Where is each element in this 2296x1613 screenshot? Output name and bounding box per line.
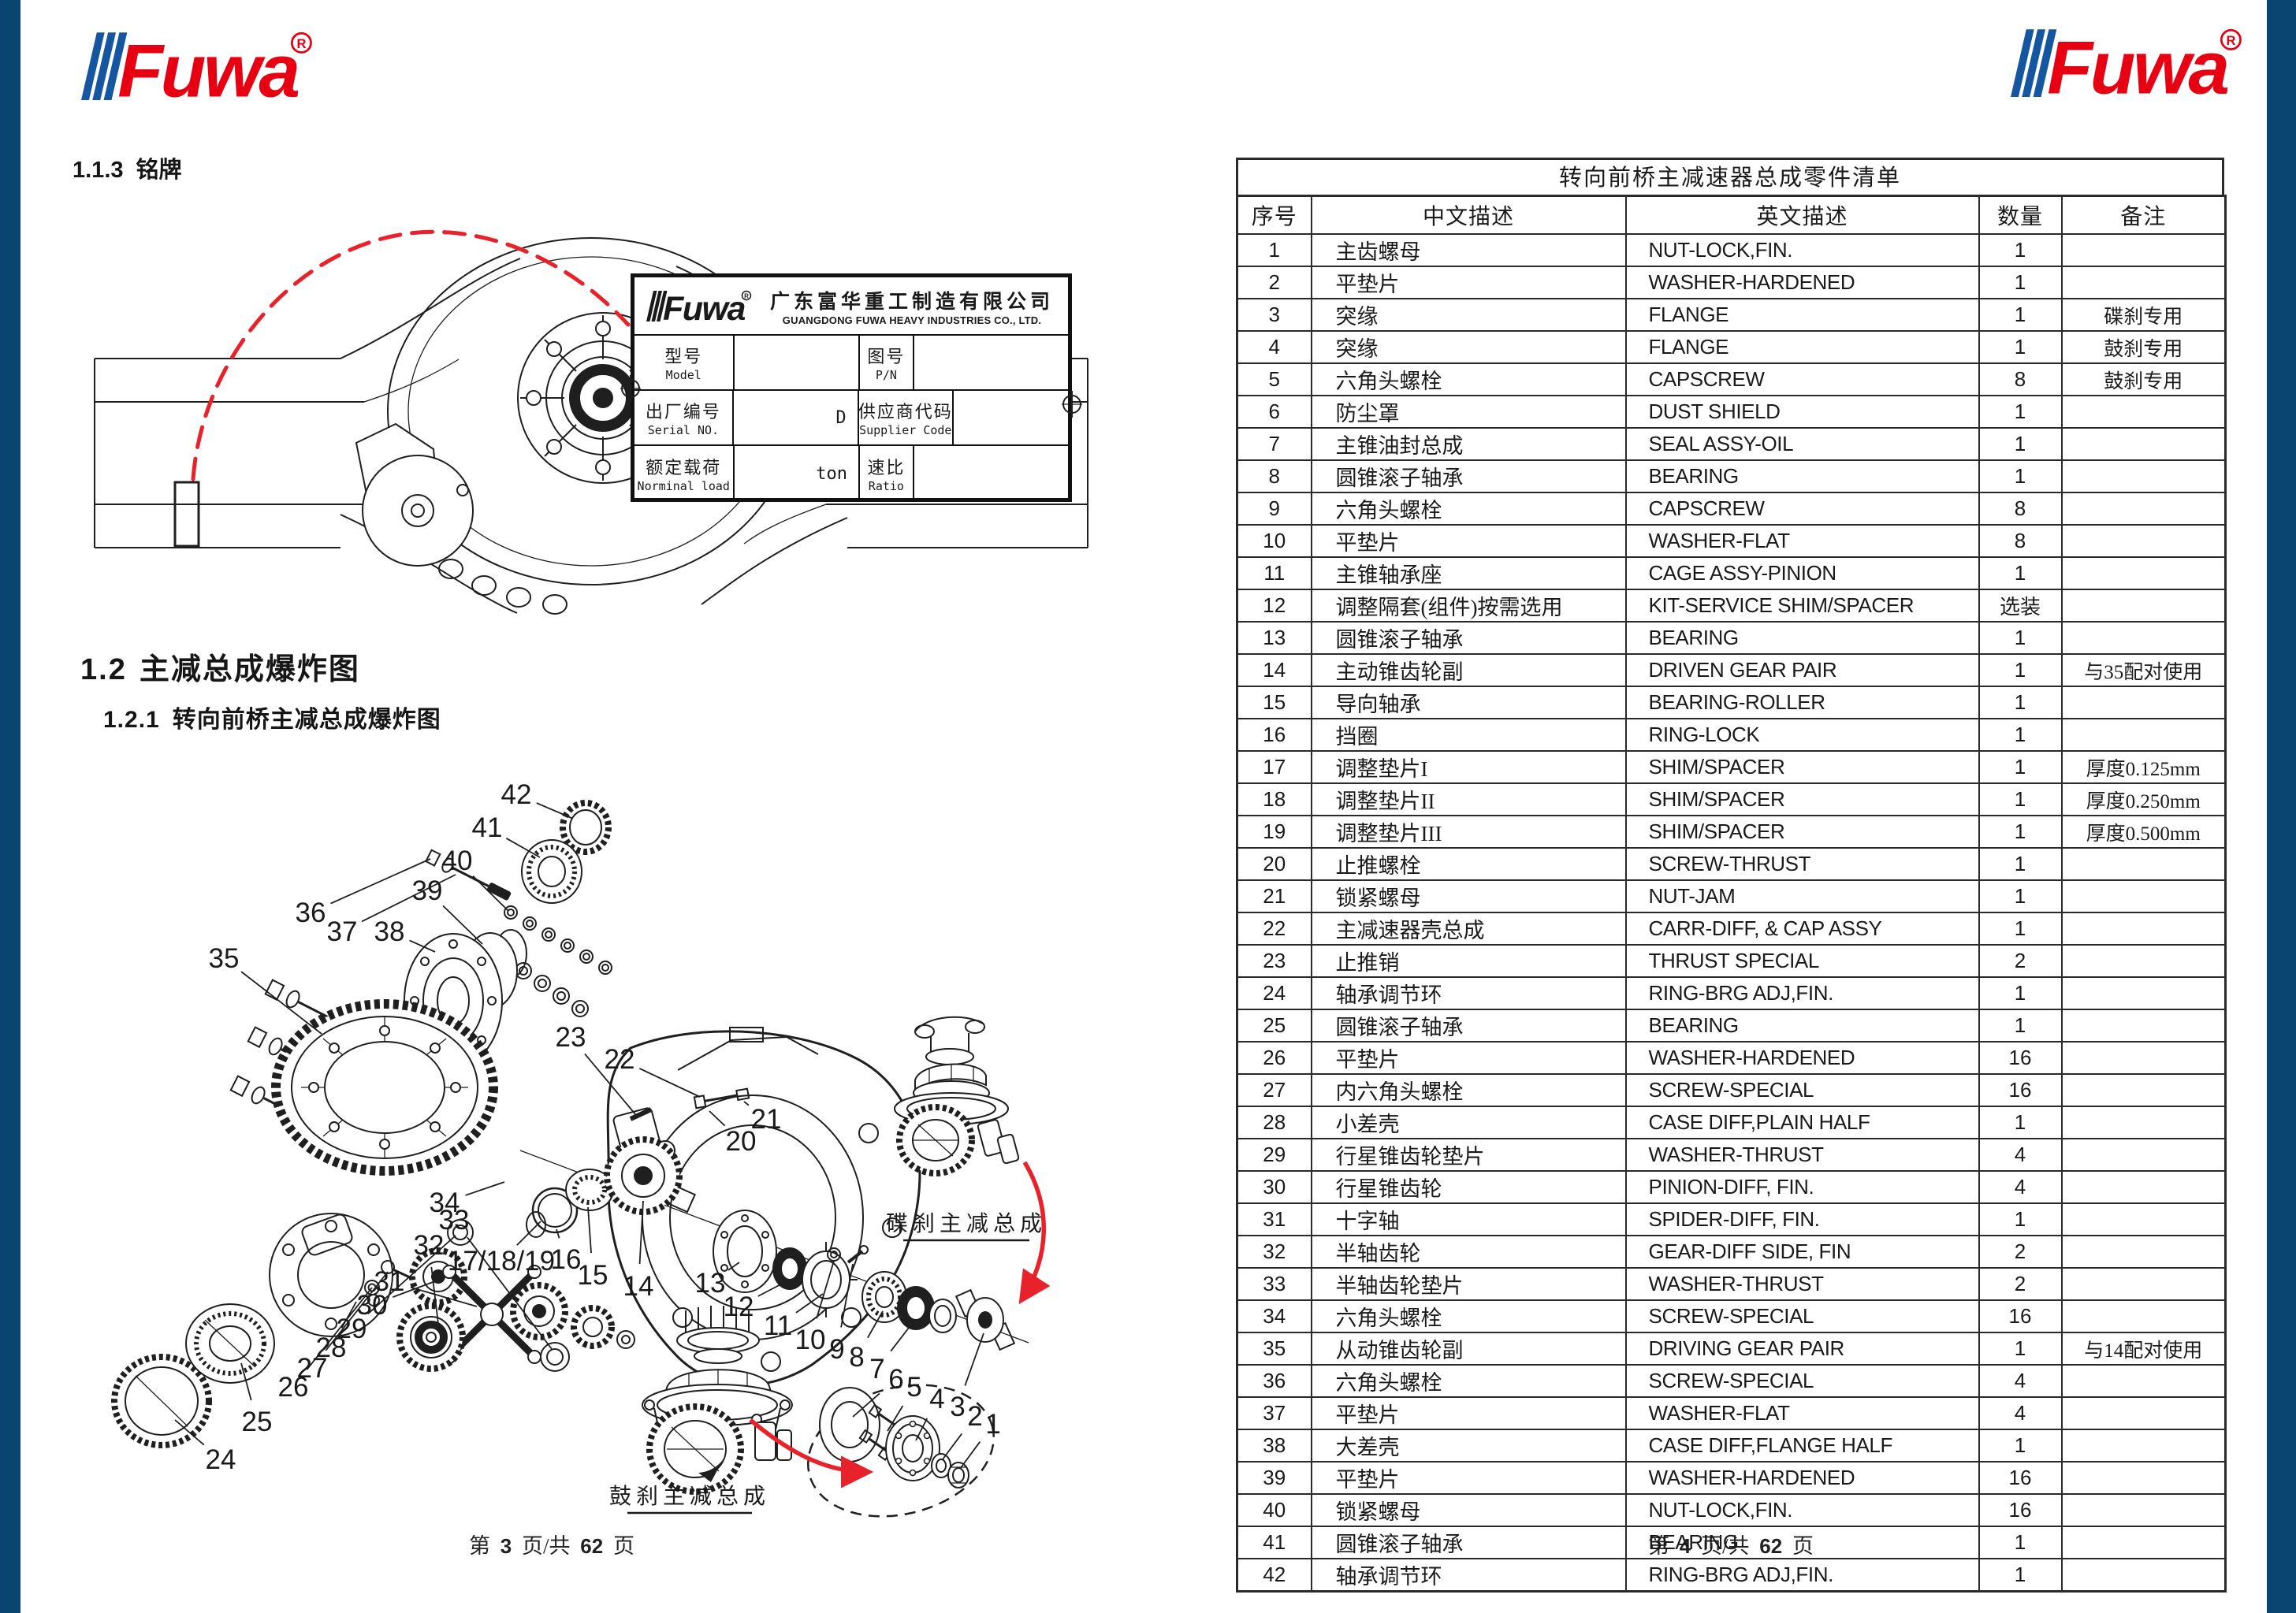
table-cell: 半轴齿轮垫片 [1312,1268,1626,1300]
table-cell: 19 [1237,816,1312,848]
table-cell [2062,1526,2226,1559]
disc-assembly-label: 碟刹主减总成 [886,1211,1047,1236]
disc-brake-assembly-inset [895,1017,1019,1173]
table-cell: 调整垫片III [1312,816,1626,848]
callout-leader-line [517,1221,541,1245]
manual-spread: Fuwa R Fuwa R 1.1.3 铭牌 1.2 主减总成爆炸图 1.2.1… [0,0,2296,1613]
nameplate-row-model: 型号Model 图号P/N [634,336,1068,391]
table-row: 37平垫片WASHER-FLAT4 [1237,1397,2226,1429]
table-cell: 1 [1979,1332,2062,1365]
part-number-label: 2 [967,1401,982,1432]
table-cell: 14 [1237,654,1312,686]
table-cell: CAPSCREW [1626,492,1979,525]
table-cell: SCREW-SPECIAL [1626,1365,1979,1397]
table-cell [2062,1074,2226,1106]
table-row: 33半轴齿轮垫片WASHER-THRUST2 [1237,1268,2226,1300]
part-number-label: 6 [888,1364,903,1395]
table-row: 18调整垫片IISHIM/SPACER1厚度0.250mm [1237,783,2226,816]
part-number-label: 1 [985,1409,1000,1440]
table-cell: 主齿螺母 [1312,234,1626,266]
table-cell: 24 [1237,977,1312,1009]
table-cell: SEAL ASSY-OIL [1626,428,1979,460]
part-number-label: 23 [556,1022,586,1053]
part-spacer [929,1299,956,1332]
part-number-label: 42 [501,779,532,810]
table-cell: 21 [1237,880,1312,912]
part-nut-1 [948,1462,969,1488]
table-cell: 小差壳 [1312,1106,1626,1139]
part-number-label: 17/18/19 [448,1246,555,1277]
section-title: 主减总成爆炸图 [140,645,360,688]
table-cell [2062,589,2226,622]
table-cell: 大差壳 [1312,1429,1626,1462]
table-row: 38大差壳CASE DIFF,FLANGE HALF1 [1237,1429,2226,1462]
part-number-label: 35 [209,943,240,974]
table-cell [2062,396,2226,428]
table-row: 7主锥油封总成SEAL ASSY-OIL1 [1237,428,2226,460]
table-cell: 32 [1237,1236,1312,1268]
table-cell: 平垫片 [1312,1397,1626,1429]
table-cell: 突缘 [1312,331,1626,363]
table-cell: 行星锥齿轮垫片 [1312,1139,1626,1171]
table-cell: 13 [1237,622,1312,654]
table-cell: 3 [1237,299,1312,331]
table-cell: 7 [1237,428,1312,460]
ratio-value-cell [914,446,1068,501]
table-cell: CASE DIFF,PLAIN HALF [1626,1106,1979,1139]
table-cell: 平垫片 [1312,1462,1626,1494]
table-cell [2062,848,2226,880]
callout-leader-line [744,1102,749,1106]
table-cell [2062,1300,2226,1332]
nameplate-row-load: 额定载荷Norminal load ton 速比Ratio [634,446,1068,501]
exploded-view-diagram: 碟刹主减总成 鼓刹主减总成 42414039363738352322212034… [79,741,1143,1576]
table-cell: 轴承调节环 [1312,1559,1626,1592]
table-row: 15导向轴承BEARING-ROLLER1 [1237,686,2226,719]
section-1-1-3-heading: 1.1.3 铭牌 [73,151,182,184]
table-row: 11主锥轴承座CAGE ASSY-PINION1 [1237,557,2226,589]
table-row: 28小差壳CASE DIFF,PLAIN HALF1 [1237,1106,2226,1139]
table-cell: 1 [1979,719,2062,751]
callout-leader-line [943,1433,962,1459]
page-footer-left: 第 3 页/共 62 页 [410,1529,694,1559]
table-cell [2062,1139,2226,1171]
table-cell: FLANGE [1626,331,1979,363]
table-cell: 16 [1979,1074,2062,1106]
table-cell: 25 [1237,1009,1312,1042]
table-header-row: 序号中文描述英文描述数量备注 [1237,196,2226,235]
table-cell: 6 [1237,396,1312,428]
table-row: 32半轴齿轮GEAR-DIFF SIDE, FIN2 [1237,1236,2226,1268]
table-cell: BEARING-ROLLER [1626,686,1979,719]
table-cell [2062,880,2226,912]
table-cell: 与35配对使用 [2062,654,2226,686]
table-row: 5六角头螺栓CAPSCREW8鼓刹专用 [1237,363,2226,396]
table-cell: 1 [1979,751,2062,783]
table-cell: 16 [1979,1300,2062,1332]
table-cell: THRUST SPECIAL [1626,945,1979,977]
table-cell [2062,1462,2226,1494]
table-cell: 29 [1237,1139,1312,1171]
table-cell: 圆锥滚子轴承 [1312,622,1626,654]
nameplate: Fuwa R 广东富华重工制造有限公司 GUANGDONG FUWA HEAVY… [631,273,1072,502]
table-cell: WASHER-THRUST [1626,1139,1979,1171]
table-cell: BEARING [1626,1526,1979,1559]
table-cell: 主动锥齿轮副 [1312,654,1626,686]
table-cell: 半轴齿轮 [1312,1236,1626,1268]
table-cell: 4 [1979,1365,2062,1397]
table-cell: NUT-LOCK,FIN. [1626,234,1979,266]
table-cell: RING-LOCK [1626,719,1979,751]
table-cell: NUT-LOCK,FIN. [1626,1494,1979,1526]
table-cell: 主锥轴承座 [1312,557,1626,589]
table-row: 22主减速器壳总成CARR-DIFF, & CAP ASSY1 [1237,912,2226,945]
table-row: 13圆锥滚子轴承BEARING1 [1237,622,2226,654]
table-cell: 41 [1237,1526,1312,1559]
table-row: 26平垫片WASHER-HARDENED16 [1237,1042,2226,1074]
table-cell: 1 [1979,460,2062,492]
table-cell [2062,1106,2226,1139]
fuwa-logo-top-right: Fuwa R [2002,19,2262,106]
table-row: 4突缘FLANGE1鼓刹专用 [1237,331,2226,363]
table-cell: 锁紧螺母 [1312,1494,1626,1526]
table-row: 41圆锥滚子轴承BEARING1 [1237,1526,2226,1559]
table-row: 24轴承调节环RING-BRG ADJ,FIN.1 [1237,977,2226,1009]
table-cell: 35 [1237,1332,1312,1365]
page-number: 3 [496,1534,516,1558]
part-number-label: 39 [412,875,443,906]
table-row: 2平垫片WASHER-HARDENED1 [1237,266,2226,299]
table-cell: 1 [1979,234,2062,266]
part-bearing-25 [186,1304,274,1383]
section-number: 1.2 [80,653,127,687]
table-cell [2062,1268,2226,1300]
callout-leader-line [891,1321,914,1351]
table-cell [2062,912,2226,945]
part-number-label: 22 [605,1044,635,1075]
part-number-label: 7 [869,1354,884,1384]
table-cell: 平垫片 [1312,525,1626,557]
table-cell [2062,234,2226,266]
table-cell: NUT-JAM [1626,880,1979,912]
part-number-label: 11 [764,1310,792,1341]
model-value-cell [735,336,861,389]
table-cell: 31 [1237,1203,1312,1236]
table-row: 20止推螺栓SCREW-THRUST1 [1237,848,2226,880]
part-dust-shield-6 [820,1388,880,1462]
table-cell [2062,1397,2226,1429]
table-cell: 锁紧螺母 [1312,880,1626,912]
table-cell: 平垫片 [1312,266,1626,299]
table-cell: 5 [1237,363,1312,396]
part-number-label: 32 [414,1230,445,1261]
table-cell [2062,719,2226,751]
pn-value-cell [914,336,1068,389]
table-cell: 8 [1237,460,1312,492]
table-cell: 39 [1237,1462,1312,1494]
table-cell [2062,492,2226,525]
table-cell: 突缘 [1312,299,1626,331]
table-cell [2062,945,2226,977]
table-cell [2062,428,2226,460]
column-header: 中文描述 [1312,196,1626,235]
table-cell: 鼓刹专用 [2062,331,2226,363]
part-thrust-pin-23 [631,1109,651,1119]
registration-crosshair-icon [1059,391,1085,418]
table-row: 40锁紧螺母NUT-LOCK,FIN.16 [1237,1494,2226,1526]
table-cell: 圆锥滚子轴承 [1312,1526,1626,1559]
table-cell: 止推螺栓 [1312,848,1626,880]
table-cell: PINION-DIFF, FIN. [1626,1171,1979,1203]
table-cell: 17 [1237,751,1312,783]
table-cell: 碟刹专用 [2062,299,2226,331]
table-cell: 34 [1237,1300,1312,1332]
table-cell [2062,266,2226,299]
table-cell: 1 [1979,880,2062,912]
table-cell: 1 [1979,816,2062,848]
section-title: 转向前桥主减总成爆炸图 [173,700,441,734]
column-header: 备注 [2062,196,2226,235]
svg-text:Fuwa: Fuwa [663,290,745,326]
part-number-label: 9 [829,1334,844,1365]
part-number-label: 10 [795,1325,826,1355]
callout-leader-line [965,1333,984,1386]
table-cell [2062,1171,2226,1203]
table-cell [2062,1365,2226,1397]
registration-crosshair-icon [617,375,644,402]
table-cell: 1 [1979,686,2062,719]
section-1-2-heading: 1.2 主减总成爆炸图 [80,645,360,688]
load-value-cell: ton [735,446,861,501]
table-cell [2062,1559,2226,1592]
table-row: 35从动锥齿轮副DRIVING GEAR PAIR1与14配对使用 [1237,1332,2226,1365]
table-cell: SHIM/SPACER [1626,783,1979,816]
table-cell: 六角头螺栓 [1312,363,1626,396]
table-cell: 38 [1237,1429,1312,1462]
table-cell: 调整垫片I [1312,751,1626,783]
part-number-label: 37 [327,916,358,947]
part-pinion-gear-14 [607,1139,695,1212]
table-cell [2062,460,2226,492]
table-cell: 厚度0.125mm [2062,751,2226,783]
part-number-label: 40 [442,846,473,876]
table-cell: 调整隔套(组件)按需选用 [1312,589,1626,622]
table-cell: 防尘罩 [1312,396,1626,428]
table-body: 1主齿螺母NUT-LOCK,FIN.12平垫片WASHER-HARDENED13… [1237,234,2226,1592]
table-cell: 1 [1979,299,2062,331]
part-number-label: 8 [849,1342,864,1373]
table-cell: 15 [1237,686,1312,719]
table-cell: 20 [1237,848,1312,880]
table-cell: 18 [1237,783,1312,816]
part-number-label: 26 [278,1372,309,1403]
fuwa-logo-top-left: Fuwa R [73,22,333,109]
part-bevel-pinion-30b [513,1285,565,1337]
table-cell: 4 [1237,331,1312,363]
table-row: 12调整隔套(组件)按需选用KIT-SERVICE SHIM/SPACER选装 [1237,589,2226,622]
table-cell: 1 [1979,783,2062,816]
table-row: 29行星锥齿轮垫片WASHER-THRUST4 [1237,1139,2226,1171]
callout-leader-line [960,1442,980,1469]
part-number-label: 5 [906,1372,921,1403]
table-cell: 4 [1979,1397,2062,1429]
part-number-label: 41 [472,812,503,843]
nameplate-company-en: GUANGDONG FUWA HEAVY INDUSTRIES CO., LTD… [761,314,1063,326]
part-side-gear-small [574,1308,634,1348]
table-cell: 1 [1979,396,2062,428]
table-cell: SPIDER-DIFF, FIN. [1626,1203,1979,1236]
table-cell: GEAR-DIFF SIDE, FIN [1626,1236,1979,1268]
table-cell [2062,1203,2226,1236]
section-number: 1.1.3 [73,158,124,184]
table-cell: 16 [1979,1494,2062,1526]
part-number-label: 36 [296,898,326,928]
table-cell: 1 [1979,266,2062,299]
table-cell: 厚度0.500mm [2062,816,2226,848]
table-cell: 1 [1979,1559,2062,1592]
table-cell: SCREW-SPECIAL [1626,1300,1979,1332]
table-cell: 2 [1237,266,1312,299]
table-row: 10平垫片WASHER-FLAT8 [1237,525,2226,557]
part-number-label: 13 [695,1268,726,1299]
table-cell: 12 [1237,589,1312,622]
part-cage-11 [794,1242,858,1318]
table-row: 23止推销THRUST SPECIAL2 [1237,945,2226,977]
table-cell: WASHER-HARDENED [1626,266,1979,299]
table-cell: 8 [1979,492,2062,525]
serial-value-cell: D [734,391,859,444]
table-cell: 10 [1237,525,1312,557]
table-cell: 导向轴承 [1312,686,1626,719]
table-cell: 从动锥齿轮副 [1312,1332,1626,1365]
table-row: 34六角头螺栓SCREW-SPECIAL16 [1237,1300,2226,1332]
table-cell: 选装 [1979,589,2062,622]
table-cell: 9 [1237,492,1312,525]
table-cell: WASHER-THRUST [1626,1268,1979,1300]
table-row: 21锁紧螺母NUT-JAM1 [1237,880,2226,912]
table-cell: BEARING [1626,622,1979,654]
table-cell: CAGE ASSY-PINION [1626,557,1979,589]
table-cell: 16 [1979,1042,2062,1074]
part-number-label: 4 [929,1384,944,1414]
table-cell: DUST SHIELD [1626,396,1979,428]
table-cell: SHIM/SPACER [1626,751,1979,783]
total-pages: 62 [575,1534,608,1558]
parts-list-table: 转向前桥主减速器总成零件清单 序号中文描述英文描述数量备注 1主齿螺母NUT-L… [1236,158,2224,1593]
svg-text:R: R [296,37,306,51]
svg-text:Fuwa: Fuwa [117,30,298,109]
callout-leader-line [709,1111,725,1126]
part-washer-33 [541,1343,569,1371]
part-bearing-41 [522,840,582,903]
table-cell: 与14配对使用 [2062,1332,2226,1365]
table-cell [2062,525,2226,557]
table-cell: 2 [1979,1236,2062,1268]
table-cell: 挡圈 [1312,719,1626,751]
table-cell: 33 [1237,1268,1312,1300]
part-number-label: 3 [950,1392,965,1422]
table-cell: 主减速器壳总成 [1312,912,1626,945]
table-row: 25圆锥滚子轴承BEARING1 [1237,1009,2226,1042]
table-cell: 1 [1979,428,2062,460]
table-cell [2062,686,2226,719]
table-cell: 1 [1979,1106,2062,1139]
table-cell: 调整垫片II [1312,783,1626,816]
table-cell: SHIM/SPACER [1626,816,1979,848]
part-number-label: 20 [726,1126,757,1157]
table-cell: 1 [1979,622,2062,654]
table-cell: 1 [1979,1203,2062,1236]
table-row: 3突缘FLANGE1碟刹专用 [1237,299,2226,331]
part-number-label: 12 [724,1292,754,1322]
part-ring-gear-35 [276,1004,493,1171]
table-cell: 26 [1237,1042,1312,1074]
table-cell [2062,1009,2226,1042]
fuwa-logo-nameplate: Fuwa R [642,285,761,326]
part-side-gear-32 [400,1306,463,1369]
table-cell: 4 [1979,1139,2062,1171]
part-yoke-3 [956,1290,1014,1350]
table-cell [2062,1042,2226,1074]
right-navy-border [2267,0,2296,1613]
table-cell: 轴承调节环 [1312,977,1626,1009]
table-row: 31十字轴SPIDER-DIFF, FIN.1 [1237,1203,2226,1236]
table-cell: 十字轴 [1312,1203,1626,1236]
table-cell: BEARING [1626,1009,1979,1042]
svg-text:R: R [2226,34,2235,48]
table-cell: 六角头螺栓 [1312,492,1626,525]
callout-leader-line [639,1069,700,1097]
table-cell: KIT-SERVICE SHIM/SPACER [1626,589,1979,622]
table-cell: 1 [1979,654,2062,686]
table-cell: 40 [1237,1494,1312,1526]
part-number-label: 38 [374,916,405,947]
table-row: 1主齿螺母NUT-LOCK,FIN.1 [1237,234,2226,266]
section-number: 1.2.1 [103,707,160,734]
table-cell: 平垫片 [1312,1042,1626,1074]
table-cell: 六角头螺栓 [1312,1365,1626,1397]
table-cell: 1 [1979,557,2062,589]
table-cell: DRIVING GEAR PAIR [1626,1332,1979,1365]
part-adjusting-ring-24 [114,1357,209,1445]
table-row: 36六角头螺栓SCREW-SPECIAL4 [1237,1365,2226,1397]
table-cell: 六角头螺栓 [1312,1300,1626,1332]
table-cell: 2 [1979,1268,2062,1300]
drum-assembly-label: 鼓刹主减总成 [609,1484,770,1509]
table-cell: 36 [1237,1365,1312,1397]
table-cell: 11 [1237,557,1312,589]
table-cell: 厚度0.250mm [2062,783,2226,816]
section-1-2-1-heading: 1.2.1 转向前桥主减总成爆炸图 [103,700,441,734]
table-row: 17调整垫片ISHIM/SPACER1厚度0.125mm [1237,751,2226,783]
table-cell: BEARING [1626,460,1979,492]
diff-attachment-drawing [356,424,567,614]
table-cell: CARR-DIFF, & CAP ASSY [1626,912,1979,945]
table-row: 16挡圈RING-LOCK1 [1237,719,2226,751]
table-cell: SCREW-SPECIAL [1626,1074,1979,1106]
svg-text:R: R [744,293,749,300]
table-cell [2062,1429,2226,1462]
table-cell: 1 [1979,331,2062,363]
table-row: 42轴承调节环RING-BRG ADJ,FIN.1 [1237,1559,2226,1592]
nameplate-location-rect [175,482,199,546]
part-number-label: 24 [206,1444,236,1475]
table-row: 9六角头螺栓CAPSCREW8 [1237,492,2226,525]
table-row: 8圆锥滚子轴承BEARING1 [1237,460,2226,492]
table-cell: WASHER-HARDENED [1626,1462,1979,1494]
table-cell: 1 [1979,1429,2062,1462]
part-seal-7 [897,1286,935,1330]
